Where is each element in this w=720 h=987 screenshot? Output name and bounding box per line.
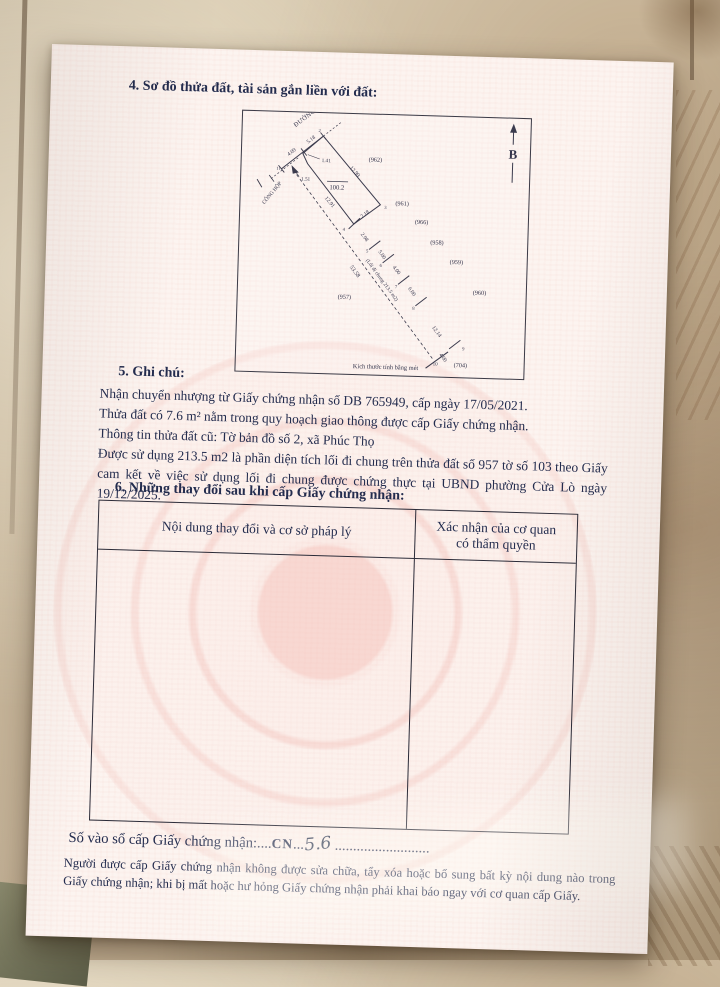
parcel-960: (960) xyxy=(473,290,487,297)
parcel-outline xyxy=(301,135,383,224)
cell-changes-empty xyxy=(90,550,415,829)
vertex-4: 4 xyxy=(343,227,346,232)
dim-1-41: 1.41 xyxy=(322,158,332,164)
diagram-caption: Kích thước tính bằng mét xyxy=(353,363,419,372)
tile-marble-vein-bottom-right xyxy=(648,846,720,966)
land-plot-diagram: B ĐƯỜNG 11 4.09 5.18 2 CỐNG HỘP xyxy=(234,110,532,380)
road-label: ĐƯỜNG xyxy=(292,111,317,129)
dim-4-00-b: 4.00 xyxy=(437,352,448,363)
dim-12-14: 12.14 xyxy=(430,325,442,339)
parcel-958: (958) xyxy=(430,239,444,246)
cell-authority-empty xyxy=(407,559,576,834)
leader-1-41 xyxy=(308,155,320,159)
dim-2-98: 2.98 xyxy=(359,232,370,243)
dim-1-51: 1.51 xyxy=(301,176,311,182)
parcel-area: 100.2 xyxy=(329,184,344,191)
section4-title: 4. Sơ đồ thửa đất, tài sản gắn liền với … xyxy=(129,78,378,101)
north-label: B xyxy=(508,147,517,162)
alley-ticks xyxy=(345,218,464,369)
alley-label: (Lối đi chung 213.5 m2) xyxy=(364,257,400,302)
alley-total-length: 53.58 xyxy=(348,265,361,279)
registry-number-line: Số vào sổ cấp Giấy chứng nhận:....CN...5… xyxy=(68,827,430,858)
vertex-3: 3 xyxy=(384,205,387,210)
changes-table: Nội dung thay đổi và cơ sở pháp lý Xác n… xyxy=(89,500,578,835)
culvert-label: CỐNG HỘP xyxy=(260,179,284,205)
section5-title: 5. Ghi chú: xyxy=(118,364,185,382)
registry-handwritten-number: 5.6 xyxy=(303,833,332,855)
certificate-page: 4. Sơ đồ thửa đất, tài sản gắn liền với … xyxy=(26,44,674,954)
parcel-959: (959) xyxy=(450,259,464,266)
tile-grout-right xyxy=(690,0,694,80)
vertex-10: 10 xyxy=(433,362,439,367)
dim-5-00: 5.00 xyxy=(376,249,387,260)
parcel-957: (957) xyxy=(338,294,352,301)
tile-marble-vein-top-right xyxy=(638,0,720,62)
culvert-leader xyxy=(257,179,262,187)
plot-diagram-svg: B ĐƯỜNG 11 4.09 5.18 2 CỐNG HỘP xyxy=(235,111,531,379)
certificate-warning-note: Người được cấp Giấy chứng nhận không đượ… xyxy=(63,855,616,906)
parcel-704: (704) xyxy=(454,362,468,369)
tile-marble-vein-right xyxy=(676,90,720,420)
north-arrow-icon: B xyxy=(508,124,519,183)
registry-label: Số vào sổ cấp Giấy chứng nhận: xyxy=(68,830,257,852)
parcel-961: (961) xyxy=(395,200,409,207)
registry-dots-b: ... xyxy=(293,837,304,853)
registry-code: CN xyxy=(271,836,293,852)
table-body-row xyxy=(90,550,576,834)
vertex-11: 11 xyxy=(276,166,281,171)
parcel-962: (962) xyxy=(369,156,383,163)
parcel-966: (966) xyxy=(415,219,429,226)
column-header-changes: Nội dung thay đổi và cơ sở pháp lý xyxy=(98,501,416,558)
vertex-9: 9 xyxy=(462,346,465,351)
dim-12-99: 12.99 xyxy=(348,165,361,179)
dim-2-18: 2.18 xyxy=(360,209,371,220)
area-overline xyxy=(327,181,348,182)
dim-4-09: 4.09 xyxy=(286,147,297,158)
dim-6-00: 6.00 xyxy=(406,286,417,297)
dim-4-00-a: 4.00 xyxy=(391,265,402,276)
vertex-6: 6 xyxy=(380,263,383,268)
vertex-5: 5 xyxy=(366,248,369,253)
registry-dots-a: .... xyxy=(257,835,272,851)
alley-dashed-line xyxy=(286,165,440,360)
vertex-8: 8 xyxy=(412,306,415,311)
registry-dots-c: .......................... xyxy=(335,838,430,857)
vertex-7: 7 xyxy=(395,284,398,289)
vertex-2: 2 xyxy=(318,128,321,133)
tile-grout-left xyxy=(9,0,27,534)
dim-5-18: 5.18 xyxy=(306,135,317,146)
column-header-authority: Xác nhận của cơ quan có thẩm quyền xyxy=(415,510,577,563)
